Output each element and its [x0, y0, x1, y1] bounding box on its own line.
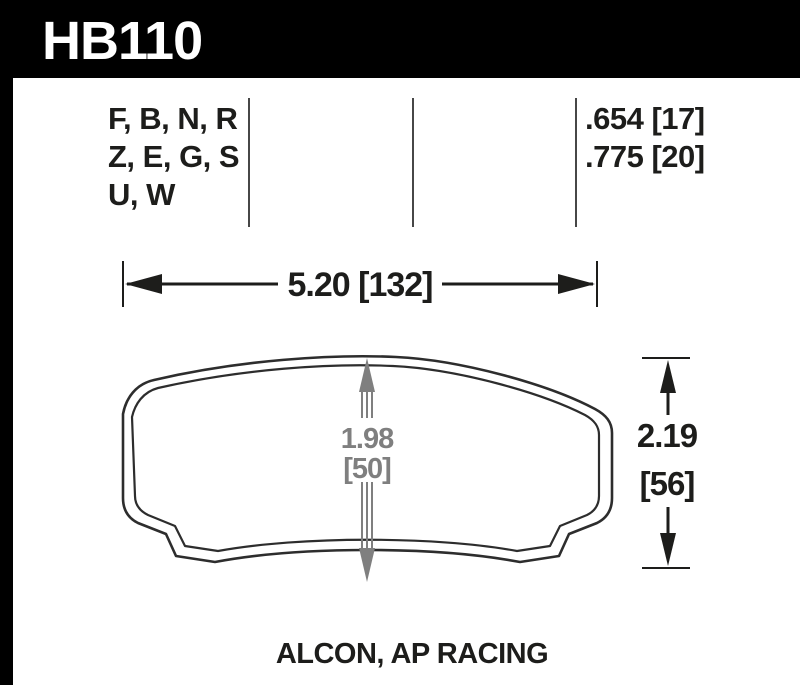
application-label: ALCON, AP RACING	[112, 638, 712, 671]
width-dim-label: 5.20 [132]	[288, 266, 433, 304]
width-dimension: 5.20 [132]	[100, 253, 620, 315]
compound-codes: F, B, N, R Z, E, G, S U, W	[108, 100, 239, 214]
center-dim-arrowhead-down-icon	[359, 548, 375, 582]
spec-divider-1	[248, 98, 250, 227]
spec-divider-2	[412, 98, 414, 227]
thickness-value-2: .775 [20]	[585, 138, 705, 176]
header-bar: HB110	[0, 0, 800, 78]
compound-line-3: U, W	[108, 176, 239, 214]
center-dim-value: 1.98	[341, 423, 394, 455]
compound-line-1: F, B, N, R	[108, 100, 239, 138]
width-dim-arrowhead-right-icon	[558, 274, 595, 294]
spec-divider-3	[575, 98, 577, 227]
compound-line-2: Z, E, G, S	[108, 138, 239, 176]
height-dim-value: 2.19	[637, 417, 698, 454]
width-dim-arrowhead-left-icon	[125, 274, 162, 294]
center-dim-mm: [50]	[343, 453, 391, 485]
thickness-value-1: .654 [17]	[585, 100, 705, 138]
height-dim-arrowhead-up-icon	[660, 360, 676, 393]
part-number: HB110	[42, 10, 202, 72]
center-dim-arrowhead-up-icon	[359, 358, 375, 392]
height-dim-mm: [56]	[640, 465, 695, 502]
brake-pad-drawing: 1.98 [50]	[100, 350, 640, 600]
height-dimension: 2.19 [56]	[628, 345, 718, 591]
pad-thickness-values: .654 [17] .775 [20]	[585, 100, 705, 176]
left-border-strip	[0, 78, 13, 685]
height-dim-arrowhead-down-icon	[660, 533, 676, 566]
